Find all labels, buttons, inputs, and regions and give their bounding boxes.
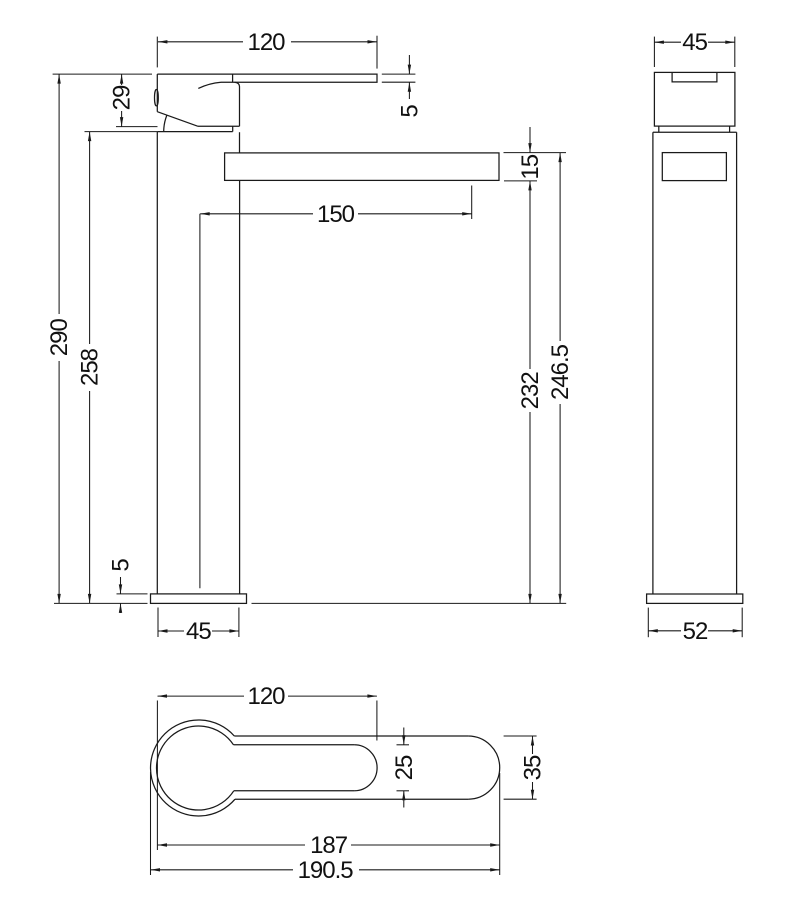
svg-text:45: 45 [682, 29, 707, 56]
svg-text:246.5: 246.5 [547, 344, 574, 400]
svg-text:187: 187 [310, 832, 348, 859]
svg-text:29: 29 [109, 85, 136, 110]
svg-text:258: 258 [77, 348, 104, 386]
svg-text:35: 35 [520, 755, 547, 780]
svg-text:290: 290 [46, 319, 73, 357]
svg-text:52: 52 [683, 618, 708, 645]
svg-text:45: 45 [186, 618, 211, 645]
svg-text:232: 232 [517, 372, 544, 410]
svg-text:120: 120 [247, 29, 285, 56]
svg-text:5: 5 [108, 559, 135, 572]
svg-text:190.5: 190.5 [298, 857, 354, 884]
svg-text:120: 120 [247, 683, 285, 710]
svg-text:150: 150 [317, 201, 355, 228]
svg-text:15: 15 [517, 154, 544, 179]
svg-text:5: 5 [396, 105, 423, 118]
svg-text:25: 25 [391, 755, 418, 780]
